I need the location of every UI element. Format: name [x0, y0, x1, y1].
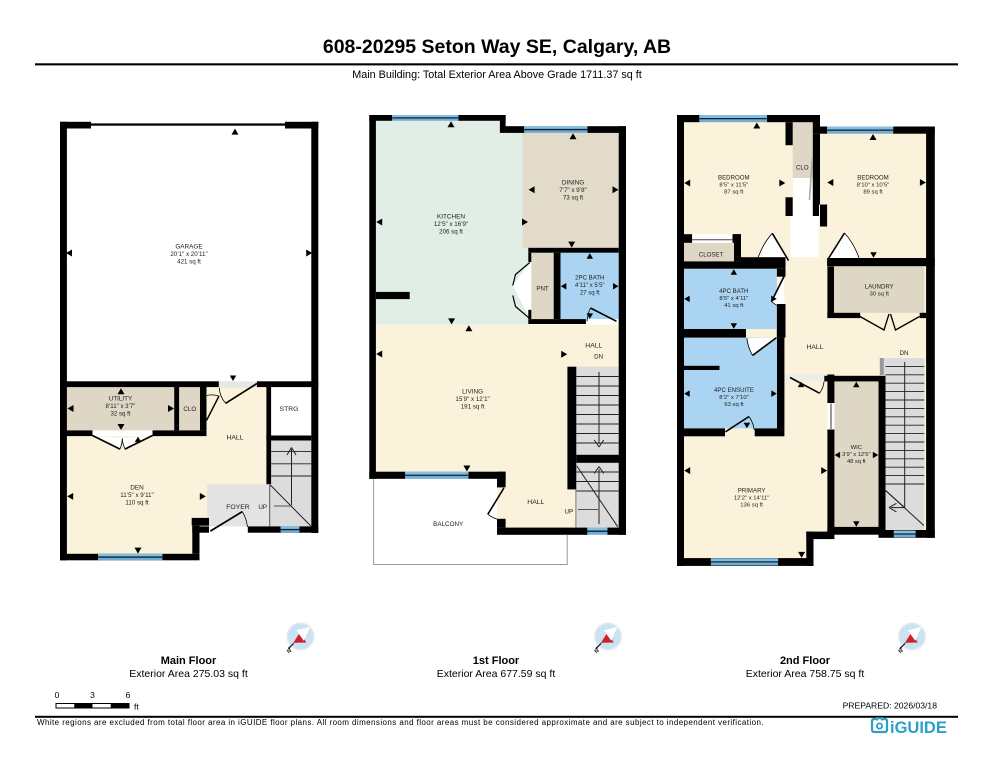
svg-text:CLO: CLO — [796, 165, 809, 172]
svg-text:UP: UP — [564, 509, 573, 516]
svg-text:3: 3 — [90, 690, 95, 700]
svg-text:BALCONY: BALCONY — [433, 521, 464, 528]
svg-text:110 sq ft: 110 sq ft — [125, 500, 149, 507]
svg-text:15’9" x 12’1": 15’9" x 12’1" — [455, 396, 489, 403]
svg-text:27 sq ft: 27 sq ft — [580, 291, 600, 297]
svg-text:CLO: CLO — [183, 406, 196, 413]
svg-text:41 sq ft: 41 sq ft — [724, 303, 744, 309]
svg-text:ft: ft — [134, 702, 139, 712]
svg-text:421 sq ft: 421 sq ft — [177, 259, 201, 266]
svg-text:48 sq ft: 48 sq ft — [847, 459, 866, 465]
svg-text:7’7" x 9’8": 7’7" x 9’8" — [559, 187, 586, 194]
svg-text:LIVING: LIVING — [462, 389, 483, 396]
svg-text:608-20295 Seton Way SE, Calgar: 608-20295 Seton Way SE, Calgary, AB — [323, 36, 671, 58]
svg-text:HALL: HALL — [806, 344, 823, 351]
svg-text:8’10" x 10’5": 8’10" x 10’5" — [857, 183, 890, 189]
svg-text:HALL: HALL — [527, 499, 544, 506]
svg-text:20’1" x 20’11": 20’1" x 20’11" — [170, 251, 207, 258]
svg-text:KITCHEN: KITCHEN — [437, 214, 465, 221]
svg-text:191 sq ft: 191 sq ft — [461, 404, 485, 411]
svg-text:Exterior Area 275.03 sq ft: Exterior Area 275.03 sq ft — [129, 668, 248, 680]
svg-text:6: 6 — [126, 690, 131, 700]
svg-text:89 sq ft: 89 sq ft — [863, 190, 883, 196]
svg-text:8’2" x 7’10": 8’2" x 7’10" — [719, 395, 748, 401]
svg-text:63 sq ft: 63 sq ft — [724, 402, 744, 408]
svg-text:73 sq ft: 73 sq ft — [563, 195, 584, 202]
svg-text:206 sq ft: 206 sq ft — [439, 229, 463, 236]
svg-text:UP: UP — [258, 504, 267, 511]
svg-text:iGUIDE: iGUIDE — [890, 719, 947, 737]
svg-text:DINING: DINING — [562, 180, 584, 187]
svg-text:UTILITY: UTILITY — [109, 396, 133, 403]
svg-text:2nd Floor: 2nd Floor — [780, 655, 831, 667]
svg-text:GARAGE: GARAGE — [175, 244, 202, 251]
svg-text:CLOSET: CLOSET — [699, 252, 724, 259]
svg-text:4’11" x 5’5": 4’11" x 5’5" — [575, 283, 605, 289]
svg-text:DEN: DEN — [130, 485, 144, 492]
svg-text:2PC BATH: 2PC BATH — [575, 275, 604, 282]
svg-text:HALL: HALL — [585, 343, 602, 350]
svg-text:PNT: PNT — [536, 286, 549, 293]
svg-text:87 sq ft: 87 sq ft — [724, 190, 744, 196]
svg-text:FOYER: FOYER — [226, 504, 250, 511]
svg-text:0: 0 — [55, 690, 60, 700]
svg-text:4PC BATH: 4PC BATH — [719, 288, 748, 295]
svg-text:White regions are excluded fro: White regions are excluded from total fl… — [37, 718, 764, 727]
svg-text:11’5" x 9’11": 11’5" x 9’11" — [120, 492, 153, 499]
svg-text:HALL: HALL — [226, 435, 243, 442]
svg-text:BEDROOM: BEDROOM — [718, 175, 750, 182]
svg-text:12’5" x 16’9": 12’5" x 16’9" — [434, 221, 468, 228]
svg-text:Main Floor: Main Floor — [161, 655, 217, 667]
svg-text:BEDROOM: BEDROOM — [857, 175, 889, 182]
svg-text:4PC ENSUITE: 4PC ENSUITE — [714, 387, 754, 394]
svg-text:1st Floor: 1st Floor — [473, 655, 520, 667]
svg-text:DN: DN — [594, 354, 603, 361]
svg-text:12’2" x 14’11": 12’2" x 14’11" — [734, 496, 770, 502]
svg-text:8’5" x 11’5": 8’5" x 11’5" — [719, 183, 748, 189]
svg-text:DN: DN — [900, 350, 909, 357]
svg-text:PRIMARY: PRIMARY — [738, 488, 766, 495]
svg-text:136 sq ft: 136 sq ft — [740, 503, 763, 509]
svg-text:8’5" x 4’11": 8’5" x 4’11" — [719, 296, 748, 302]
svg-text:30 sq ft: 30 sq ft — [870, 292, 890, 298]
svg-text:3’9" x 12’5": 3’9" x 12’5" — [842, 452, 870, 458]
svg-text:STRG: STRG — [280, 406, 299, 413]
svg-text:Main Building: Total Exterior: Main Building: Total Exterior Area Above… — [352, 69, 642, 81]
svg-text:LAUNDRY: LAUNDRY — [865, 284, 894, 291]
svg-text:8’11" x 3’7": 8’11" x 3’7" — [106, 403, 136, 410]
svg-text:WIC: WIC — [851, 445, 863, 451]
svg-text:Exterior Area 677.59 sq ft: Exterior Area 677.59 sq ft — [437, 668, 556, 680]
svg-text:PREPARED: 2026/03/18: PREPARED: 2026/03/18 — [843, 701, 938, 711]
svg-text:32 sq ft: 32 sq ft — [111, 411, 131, 418]
svg-text:Exterior Area 758.75 sq ft: Exterior Area 758.75 sq ft — [746, 668, 865, 680]
